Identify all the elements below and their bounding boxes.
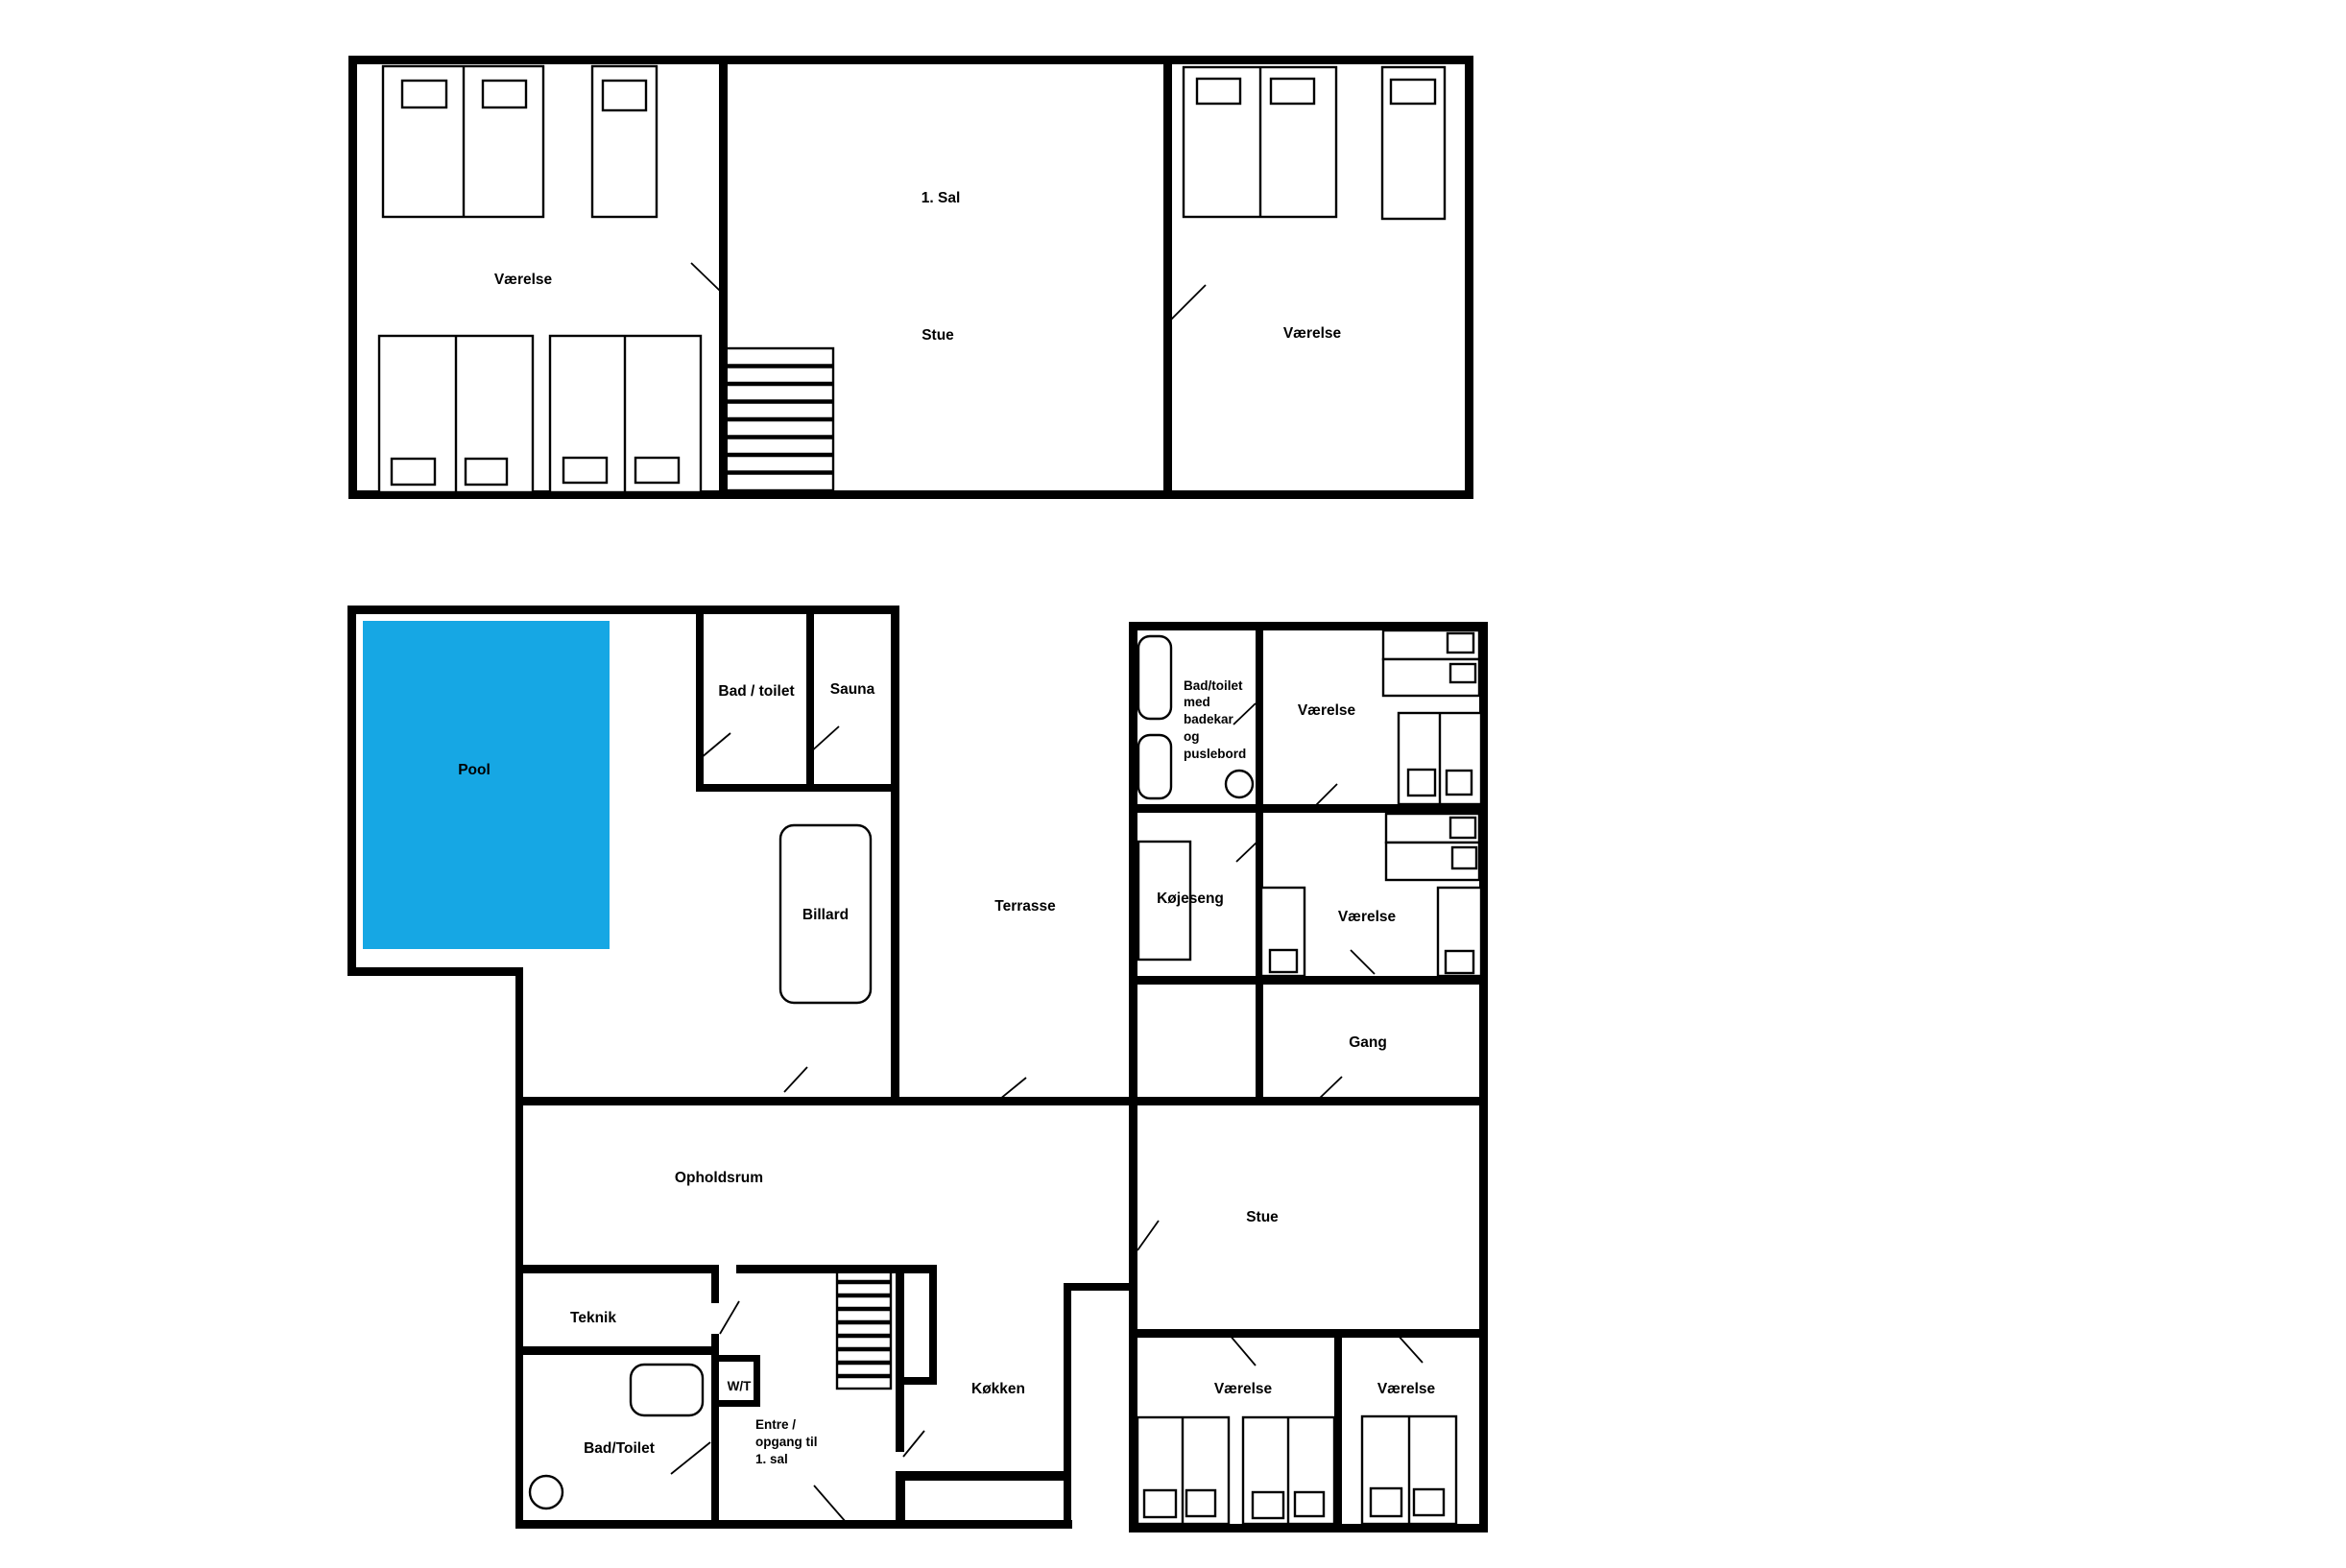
wall [515, 1097, 1137, 1105]
wall [896, 1385, 904, 1452]
sink [1226, 771, 1253, 797]
bathroom-table [631, 1365, 703, 1415]
pillow [402, 81, 446, 107]
pillow [1295, 1492, 1324, 1516]
wall [891, 606, 899, 1105]
wall [1129, 622, 1137, 1532]
pillow [1408, 770, 1435, 796]
double-bed [383, 66, 543, 217]
single-bed [592, 66, 657, 217]
wall [896, 1377, 937, 1385]
wall [1129, 804, 1488, 813]
door-swing [671, 1442, 710, 1474]
swimming-pool [363, 621, 610, 949]
room-label-hallway: Gang [1349, 1034, 1387, 1051]
kitchen-counter-edge [896, 1471, 1071, 1481]
pillow [1447, 771, 1472, 795]
wall [696, 784, 899, 792]
double-bed [1399, 713, 1481, 804]
stairs-first-floor [726, 348, 833, 490]
pillow [1186, 1490, 1215, 1516]
label-line: opgang til [755, 1435, 818, 1449]
room-label-bath2: Bad/Toilet [584, 1440, 655, 1457]
wall [515, 967, 523, 1529]
door-swing [691, 263, 720, 291]
wall [1129, 976, 1488, 985]
wall [1465, 56, 1473, 499]
pillow [1197, 79, 1240, 104]
wall [347, 606, 356, 976]
double-bed [550, 336, 701, 492]
label-line: og [1184, 729, 1200, 744]
door-swing [1167, 285, 1206, 323]
pillow [1450, 818, 1475, 838]
wall [1129, 1329, 1488, 1338]
toilet [530, 1476, 563, 1509]
floorplan-page: Værelse 1. Sal Stue Værelse Pool [0, 0, 2346, 1563]
door-swing [784, 1067, 807, 1092]
wall [696, 614, 704, 792]
wall [711, 1334, 719, 1529]
pillow [563, 458, 607, 483]
door-swing [1351, 950, 1375, 974]
door-swing [1229, 1334, 1256, 1366]
room-label-bedroom-s2: Værelse [1377, 1381, 1436, 1397]
room-label-family-bath: Bad/toilet med badekar og puslebord [1184, 678, 1246, 761]
pillow [466, 459, 507, 485]
label-line: 1. sal [755, 1452, 788, 1466]
wall [1064, 1283, 1137, 1291]
door-swing [1137, 1221, 1159, 1250]
stairs-ground-floor [837, 1269, 891, 1389]
door-swing [1397, 1334, 1423, 1363]
room-label-terrace: Terrasse [994, 898, 1056, 915]
pillow [1448, 633, 1473, 653]
pillow [1452, 847, 1476, 868]
door-swing [814, 1485, 846, 1522]
label-line: puslebord [1184, 747, 1246, 761]
wall [348, 56, 357, 499]
single-bed [1261, 888, 1305, 976]
door-swing [720, 1301, 739, 1334]
door-swing [903, 1431, 924, 1457]
wall [1163, 56, 1172, 499]
pillow [1270, 950, 1297, 972]
stairs-outline [837, 1269, 891, 1389]
wall [347, 967, 523, 976]
room-label-kitchen: Køkken [971, 1381, 1025, 1397]
wall [1129, 1524, 1488, 1532]
room-label-bedroom-left: Værelse [494, 272, 553, 288]
wall [806, 614, 814, 792]
double-bed [1362, 1416, 1456, 1524]
single-bed [1382, 67, 1445, 219]
room-label-entry: Entre / opgang til 1. sal [755, 1417, 818, 1466]
wall [711, 1265, 719, 1303]
room-label-pool: Pool [458, 762, 491, 778]
pillow [483, 81, 526, 107]
floorplan-drawing: Værelse 1. Sal Stue Værelse Pool [0, 0, 2346, 1563]
pillow [1391, 80, 1435, 104]
wall [754, 1355, 760, 1407]
wall [1129, 622, 1488, 630]
pillow [603, 81, 646, 110]
room-label-wt: W/T [728, 1379, 752, 1393]
wall [929, 1265, 937, 1385]
pillow [1253, 1492, 1283, 1518]
double-bed [1184, 67, 1336, 217]
first-floor-plan: Værelse 1. Sal Stue Værelse [348, 56, 1473, 499]
pillow [1371, 1488, 1401, 1516]
changing-table [1138, 735, 1171, 798]
label-line: med [1184, 695, 1210, 709]
label-line: badekar [1184, 712, 1234, 726]
floor-label: 1. Sal [922, 190, 961, 206]
room-label-bedroom-e: Værelse [1338, 909, 1397, 925]
wall [896, 1265, 904, 1385]
room-label-bedroom-s1: Værelse [1214, 1381, 1273, 1397]
single-bed [1438, 888, 1481, 976]
pillow [1144, 1490, 1176, 1517]
room-label-living: Stue [922, 327, 954, 344]
label-line: Entre / [755, 1417, 796, 1432]
room-label-lounge: Opholdsrum [675, 1170, 763, 1186]
wall [515, 1520, 1072, 1529]
double-bed [1137, 1417, 1229, 1524]
wall [1256, 622, 1263, 1105]
pillow [1271, 79, 1314, 104]
room-label-bedroom-right: Værelse [1283, 325, 1342, 342]
wall [515, 1265, 715, 1273]
room-label-living: Stue [1246, 1209, 1279, 1225]
room-label-billiards: Billard [802, 907, 849, 923]
bathtub [1138, 636, 1171, 719]
door-swing [701, 733, 730, 758]
room-label-tech: Teknik [570, 1310, 616, 1326]
pillow [1446, 951, 1473, 973]
label-line: Bad/toilet [1184, 678, 1243, 693]
ground-floor-plan: Pool [347, 606, 1488, 1532]
room-label-bath-toilet: Bad / toilet [718, 683, 794, 700]
double-bed [1243, 1417, 1334, 1524]
pillow [1450, 664, 1475, 682]
door-swing [1236, 842, 1257, 862]
wall [515, 1346, 719, 1355]
bunk-bed [1383, 630, 1479, 696]
wall [719, 1400, 760, 1407]
room-label-bedroom-ne: Værelse [1298, 702, 1356, 719]
kitchen-counter-edge [896, 1481, 905, 1529]
pillow [1414, 1489, 1444, 1515]
door-swing [1315, 784, 1337, 806]
room-label-sauna: Sauna [830, 681, 875, 698]
pillow [392, 459, 435, 485]
wall [348, 56, 1473, 64]
double-bed [379, 336, 533, 492]
bunk-bed [1386, 814, 1479, 880]
wall [1064, 1283, 1071, 1529]
pillow [635, 458, 679, 483]
door-swing [1233, 703, 1256, 725]
wall [347, 606, 899, 614]
wall [1129, 1097, 1488, 1105]
room-label-bunk-room: Køjeseng [1157, 891, 1224, 907]
